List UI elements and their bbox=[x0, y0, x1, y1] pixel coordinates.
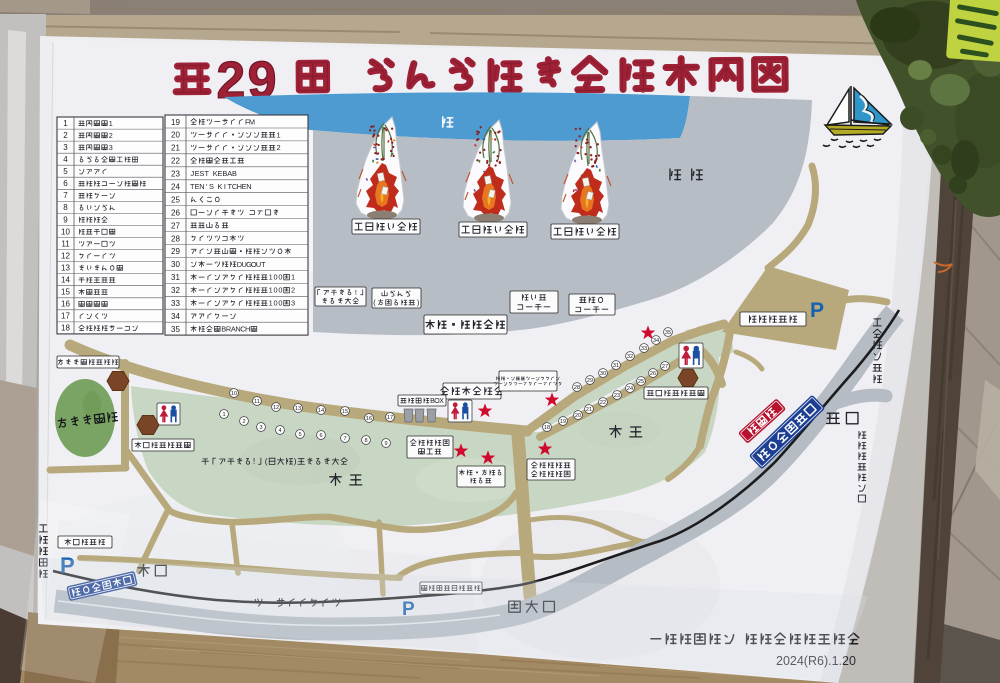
svg-text:1: 1 bbox=[277, 130, 281, 139]
svg-text:!: ! bbox=[253, 456, 255, 466]
svg-text:T: T bbox=[261, 260, 266, 269]
svg-text:27: 27 bbox=[171, 221, 180, 230]
svg-text:11: 11 bbox=[61, 239, 70, 248]
svg-text:0: 0 bbox=[278, 286, 282, 295]
svg-text:4: 4 bbox=[278, 428, 281, 434]
svg-text:1: 1 bbox=[222, 412, 225, 418]
svg-text:29: 29 bbox=[587, 378, 593, 384]
svg-text:28: 28 bbox=[171, 234, 180, 243]
svg-text:B: B bbox=[232, 169, 237, 178]
svg-text:24: 24 bbox=[627, 386, 633, 392]
svg-text:21: 21 bbox=[586, 407, 592, 413]
svg-text:7: 7 bbox=[63, 191, 68, 200]
svg-text:18: 18 bbox=[61, 324, 70, 333]
svg-text:34: 34 bbox=[171, 312, 180, 321]
svg-text:35: 35 bbox=[665, 330, 671, 336]
svg-text:): ) bbox=[294, 456, 297, 466]
svg-text:8: 8 bbox=[364, 438, 367, 444]
svg-text:2: 2 bbox=[109, 131, 113, 140]
svg-text:31: 31 bbox=[613, 363, 619, 369]
svg-text:28: 28 bbox=[574, 385, 580, 391]
svg-text:0: 0 bbox=[273, 286, 277, 295]
svg-text:1: 1 bbox=[269, 273, 273, 282]
svg-text:34: 34 bbox=[653, 338, 659, 344]
svg-text:25: 25 bbox=[171, 195, 180, 204]
svg-text:15: 15 bbox=[342, 409, 348, 415]
svg-text:10: 10 bbox=[231, 391, 237, 397]
svg-text:22: 22 bbox=[171, 157, 180, 166]
svg-text:0: 0 bbox=[278, 273, 282, 282]
svg-text:14: 14 bbox=[318, 408, 324, 414]
svg-text:2: 2 bbox=[291, 286, 295, 295]
svg-text:29: 29 bbox=[171, 247, 180, 256]
svg-text:24: 24 bbox=[171, 183, 180, 192]
svg-text:(: ( bbox=[265, 456, 268, 466]
svg-text:31: 31 bbox=[171, 273, 180, 282]
svg-text:I: I bbox=[224, 182, 226, 191]
svg-text:!: ! bbox=[355, 288, 357, 297]
svg-text:32: 32 bbox=[627, 354, 633, 360]
svg-text:33: 33 bbox=[641, 346, 647, 352]
svg-text:25: 25 bbox=[638, 379, 644, 385]
svg-text:16: 16 bbox=[366, 416, 372, 422]
svg-text:1: 1 bbox=[269, 299, 273, 308]
svg-text:9: 9 bbox=[63, 215, 68, 224]
svg-text:4: 4 bbox=[63, 155, 68, 164]
svg-text:10: 10 bbox=[61, 227, 70, 236]
svg-text:H: H bbox=[245, 325, 250, 334]
svg-text:): ) bbox=[417, 298, 419, 307]
svg-text:15: 15 bbox=[61, 288, 70, 297]
svg-text:N: N bbox=[199, 182, 204, 191]
svg-text:K: K bbox=[218, 182, 223, 191]
svg-text:P: P bbox=[810, 299, 824, 322]
svg-text:3: 3 bbox=[259, 425, 262, 431]
svg-text:14: 14 bbox=[61, 276, 70, 285]
svg-text:S: S bbox=[209, 182, 214, 191]
svg-text:17: 17 bbox=[387, 415, 393, 421]
svg-text:1: 1 bbox=[269, 286, 273, 295]
svg-text:19: 19 bbox=[171, 118, 180, 127]
svg-text:5: 5 bbox=[63, 167, 68, 176]
svg-text:22: 22 bbox=[600, 400, 606, 406]
svg-text:11: 11 bbox=[254, 399, 260, 405]
svg-text:2: 2 bbox=[63, 131, 68, 140]
svg-text:2: 2 bbox=[242, 419, 245, 425]
svg-text:13: 13 bbox=[61, 264, 70, 273]
svg-text:0: 0 bbox=[273, 273, 277, 282]
svg-text:X: X bbox=[439, 398, 444, 405]
svg-text:23: 23 bbox=[171, 170, 180, 179]
svg-text:30: 30 bbox=[171, 260, 180, 269]
svg-text:1: 1 bbox=[291, 273, 295, 282]
svg-text:35: 35 bbox=[171, 325, 180, 334]
svg-text:20: 20 bbox=[575, 413, 581, 419]
svg-text:18: 18 bbox=[544, 425, 550, 431]
svg-text:N: N bbox=[246, 182, 251, 191]
svg-text:3: 3 bbox=[291, 299, 295, 308]
svg-text:T: T bbox=[204, 169, 209, 178]
svg-text:3: 3 bbox=[63, 143, 68, 152]
svg-text:32: 32 bbox=[171, 286, 180, 295]
svg-text:12: 12 bbox=[273, 405, 279, 411]
svg-text:26: 26 bbox=[650, 371, 656, 377]
svg-text:26: 26 bbox=[171, 208, 180, 217]
svg-text:19: 19 bbox=[560, 419, 566, 425]
svg-text:0: 0 bbox=[273, 299, 277, 308]
svg-text:1: 1 bbox=[109, 119, 113, 128]
svg-text:3: 3 bbox=[109, 143, 113, 152]
svg-text:9: 9 bbox=[384, 441, 387, 447]
svg-text:M: M bbox=[249, 117, 255, 126]
svg-text:2: 2 bbox=[277, 143, 281, 152]
svg-text:17: 17 bbox=[61, 312, 70, 321]
svg-text:20: 20 bbox=[171, 131, 180, 140]
svg-text:27: 27 bbox=[662, 364, 668, 370]
svg-text:6: 6 bbox=[319, 433, 322, 439]
svg-text:0: 0 bbox=[278, 299, 282, 308]
svg-text:8: 8 bbox=[63, 203, 68, 212]
svg-text:1: 1 bbox=[63, 119, 68, 128]
svg-text:12: 12 bbox=[61, 251, 70, 260]
svg-text:21: 21 bbox=[171, 144, 180, 153]
svg-text:30: 30 bbox=[600, 371, 606, 377]
svg-text:33: 33 bbox=[171, 299, 180, 308]
svg-text:7: 7 bbox=[343, 436, 346, 442]
svg-text:6: 6 bbox=[63, 179, 68, 188]
svg-text:23: 23 bbox=[614, 393, 620, 399]
svg-text:5: 5 bbox=[298, 432, 301, 438]
svg-text:16: 16 bbox=[61, 300, 70, 309]
svg-text:13: 13 bbox=[295, 406, 301, 412]
